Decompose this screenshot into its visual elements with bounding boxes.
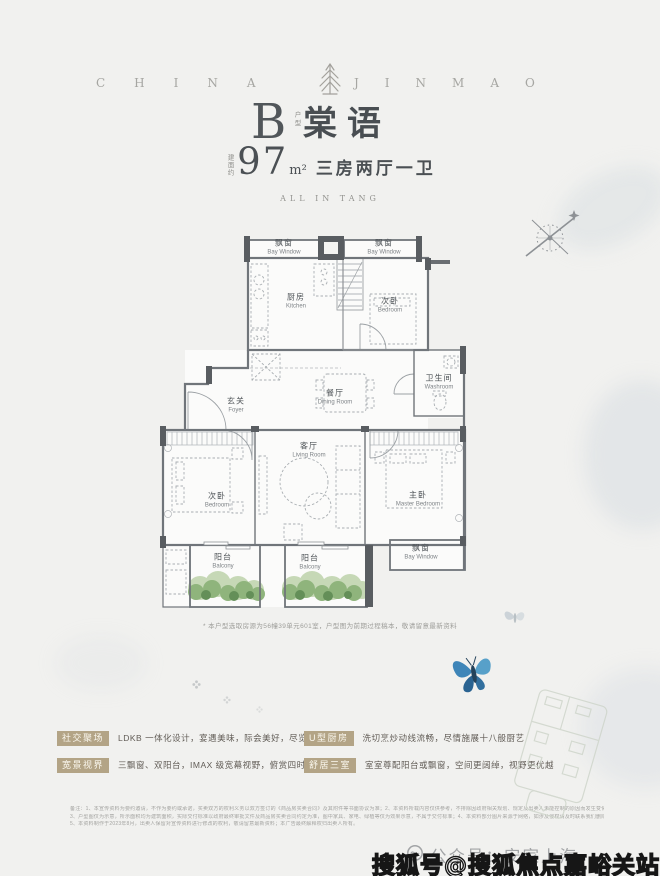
room-label-bedroom-left: 次卧 Bedroom <box>204 492 230 511</box>
feature-tag: 社交聚场 <box>57 731 109 746</box>
room-label-bedroom-top: 次卧 Bedroom <box>377 297 403 316</box>
flower-icon <box>192 676 201 694</box>
feature-text: 洗切烹炒动线流畅，尽情施展十八般厨艺 <box>363 731 525 746</box>
feature-text: 三飘窗、双阳台，IMAX 级宽幕视野，俯赏四时风光 <box>118 758 324 773</box>
room-label-balcony-left: 阳台 Balcony <box>211 553 234 572</box>
flower-icon <box>256 700 263 718</box>
layout-description: 三房两厅一卫 <box>316 154 436 179</box>
unit-type-letter: B <box>251 98 286 146</box>
butterfly-icon <box>445 640 503 708</box>
room-label-bay-window-top-left: 飘窗 Bay Window <box>266 239 302 258</box>
unit-type-side-label: 户型 <box>291 111 301 128</box>
jinmao-tree-logo-icon <box>312 58 348 103</box>
brand-wordmark-right: JINMAO <box>354 76 561 90</box>
feature-item: 社交聚场 LDKB 一体化设计，宴遇美味，际会美好，尽览美景 <box>57 731 325 746</box>
room-label-living-room: 客厅 Living Room <box>291 442 327 461</box>
room-label-washroom: 卫生间 Washroom <box>423 374 454 393</box>
sohu-watermark: 搜狐号@搜狐焦点嘉峪关站 <box>372 846 660 876</box>
area-number: 97 <box>237 140 288 183</box>
tagline-en: ALL IN TANG <box>0 194 660 203</box>
area-side-label: 建面约 <box>224 154 234 177</box>
plan-disclaimer-note: * 本户型选取房源为56幢39单元601室，户型图为前期过程稿本，敬请留意最新资… <box>0 620 660 630</box>
feature-item: 宽景视界 三飘窗、双阳台，IMAX 级宽幕视野，俯赏四时风光 <box>57 758 324 773</box>
feature-item: U型厨房 洗切烹炒动线流畅，尽情施展十八般厨艺 <box>304 731 525 746</box>
floorplan-poster: CHINA JINMAO B 户型 棠语 建面约 97 m² 三房两厅一卫 AL… <box>0 0 660 876</box>
feature-text: LDKB 一体化设计，宴遇美味，际会美好，尽览美景 <box>118 731 325 746</box>
room-label-balcony-center: 阳台 Balcony <box>298 554 321 573</box>
room-label-bay-window-bottom-right: 飘窗 Bay Window <box>403 544 439 563</box>
brand-wordmark-left: CHINA <box>96 76 285 90</box>
butterfly-icon-small <box>502 604 528 635</box>
feature-tag: 舒居三室 <box>304 758 356 773</box>
room-label-master-bedroom: 主卧 Master Bedroom <box>394 491 442 510</box>
cloud-decoration <box>56 636 146 690</box>
flower-icon <box>223 691 231 709</box>
feature-tag: U型厨房 <box>304 731 354 746</box>
feature-tag: 宽景视界 <box>57 758 109 773</box>
compass-icon <box>518 204 582 273</box>
room-label-kitchen: 厨房 Kitchen <box>285 293 307 312</box>
room-label-bay-window-top-right: 飘窗 Bay Window <box>366 239 402 258</box>
area-line: 建面约 97 m² 三房两厅一卫 <box>0 140 660 183</box>
plan-name: 棠语 <box>303 104 391 145</box>
area-unit: m² <box>289 163 307 178</box>
room-label-foyer: 玄关 Foyer <box>227 397 245 416</box>
feather-decoration <box>584 380 660 530</box>
room-label-dining-room: 餐厅 Dining Room <box>316 389 354 408</box>
